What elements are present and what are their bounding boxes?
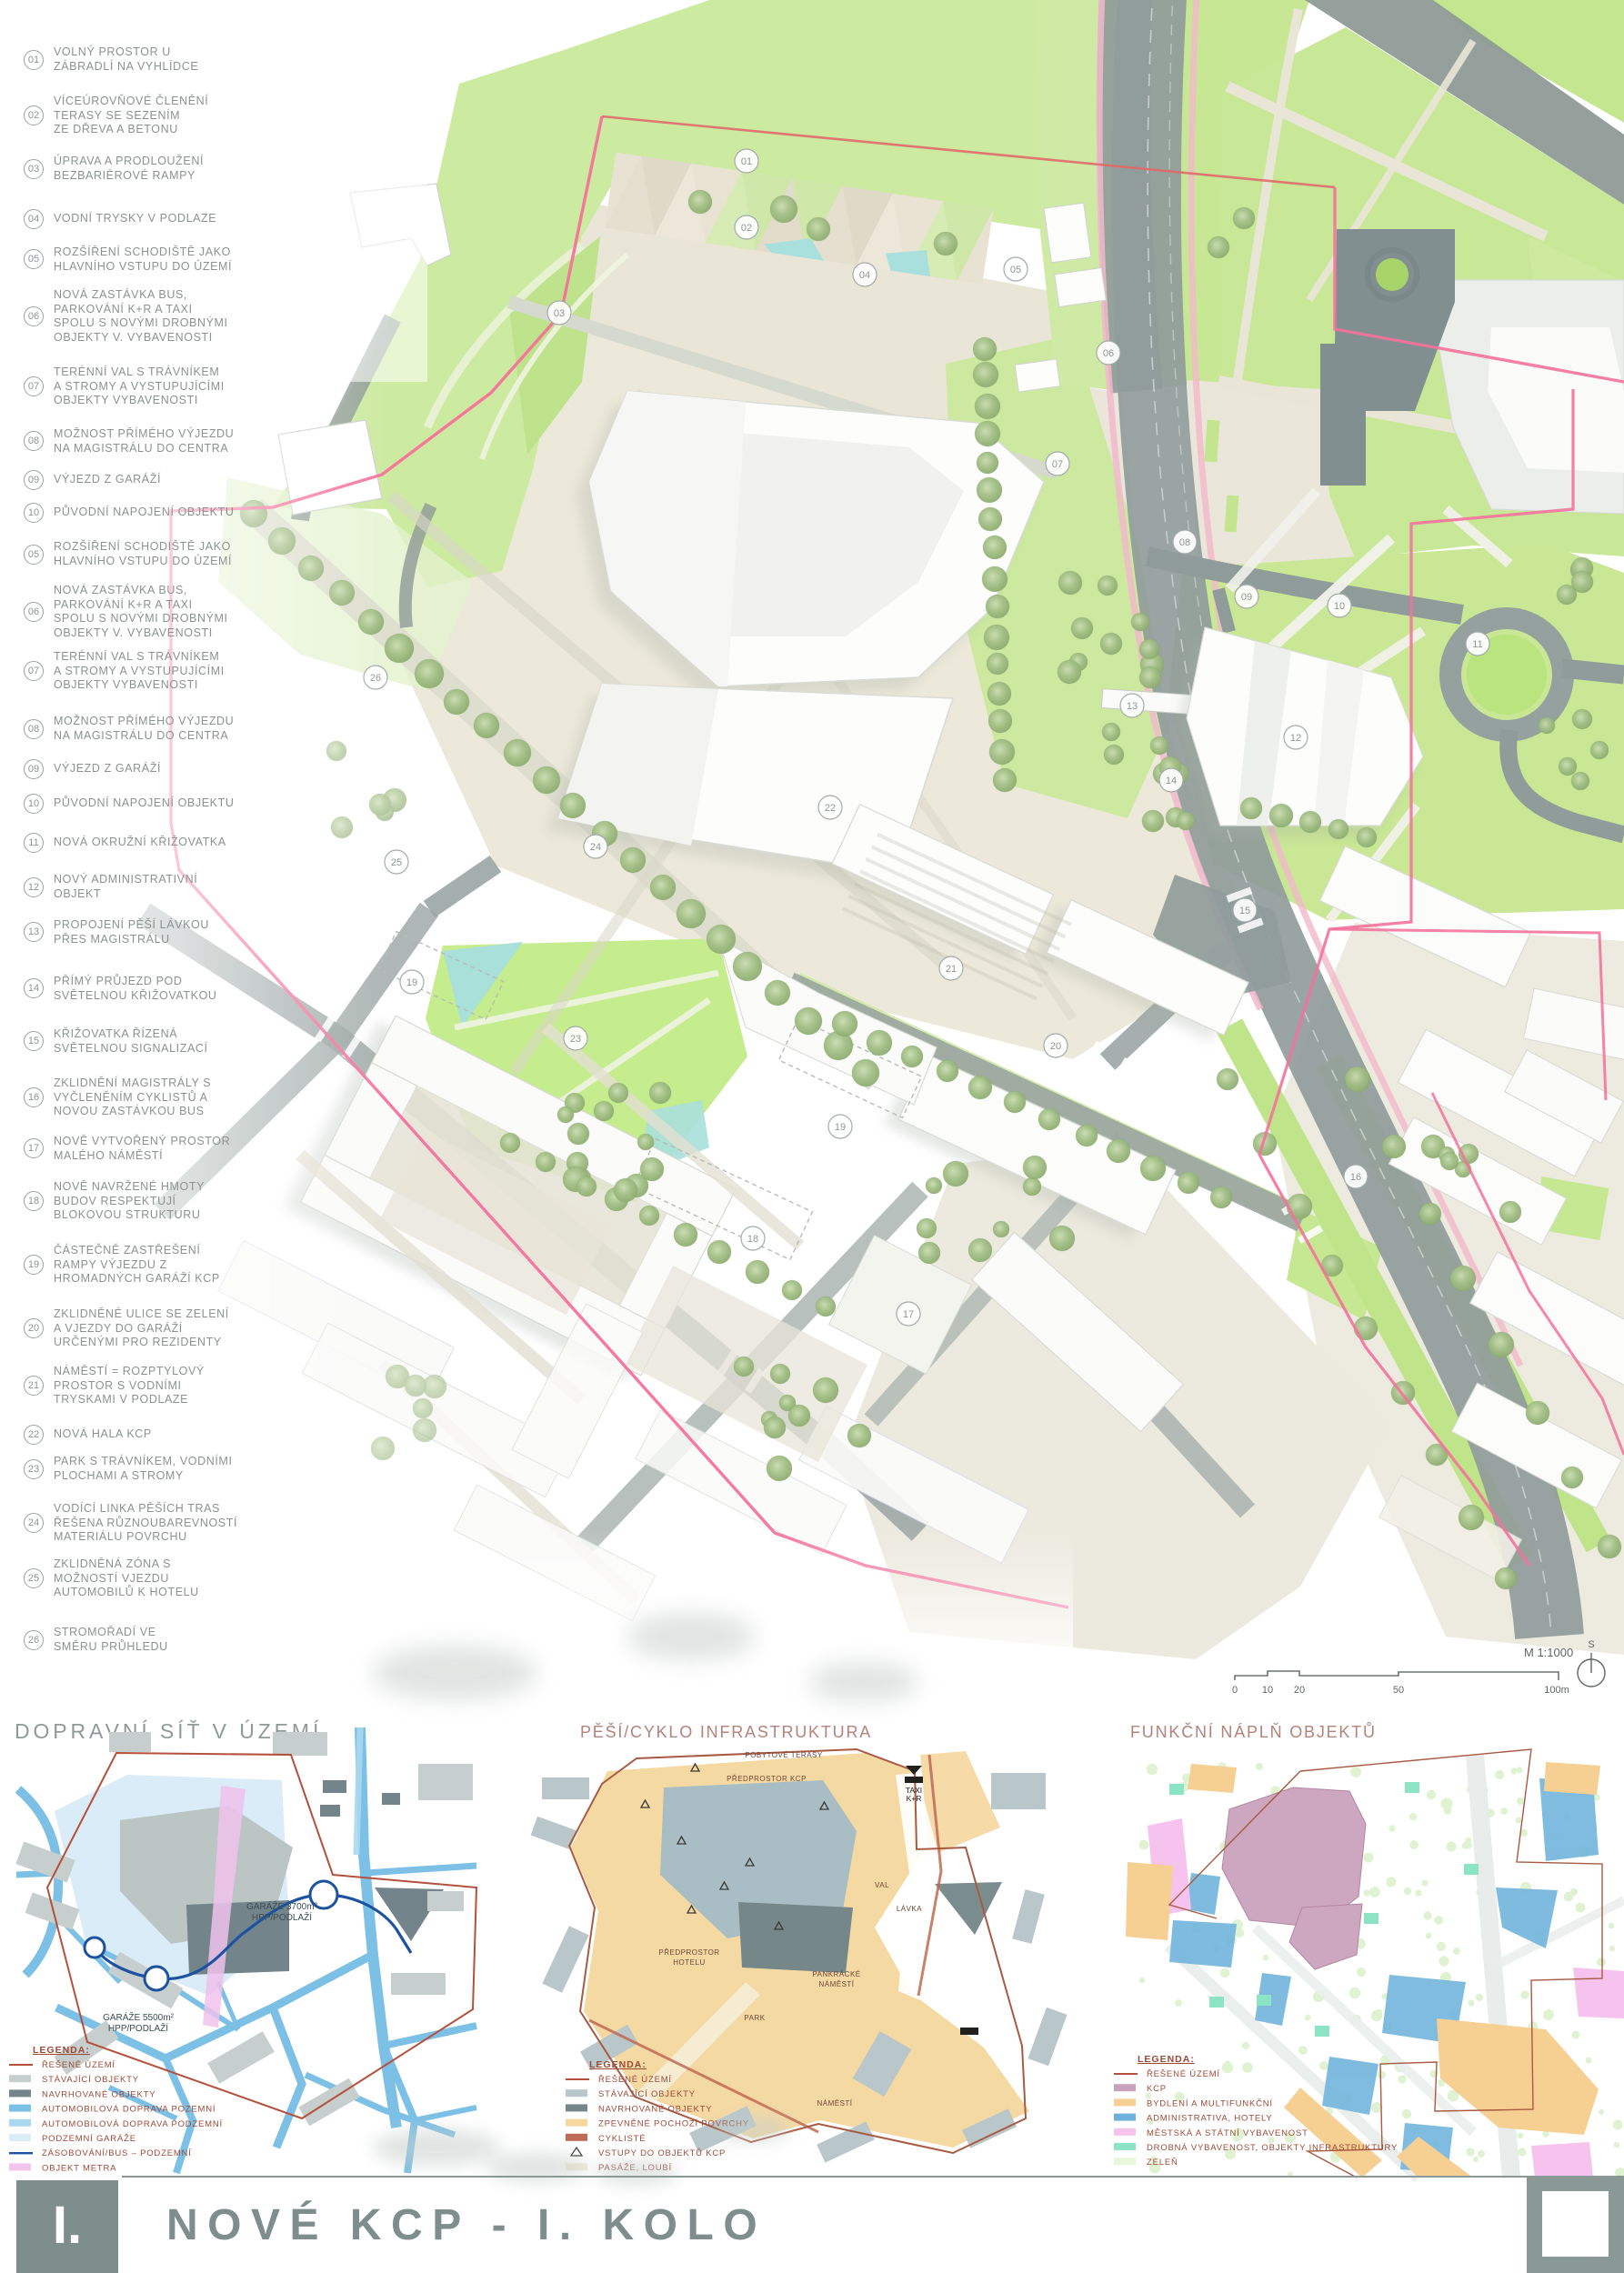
svg-text:HPP/PODLAŽÍ: HPP/PODLAŽÍ — [108, 2022, 168, 2034]
svg-text:ADMINISTRATIVA, HOTELY: ADMINISTRATIVA, HOTELY — [1147, 2114, 1272, 2124]
svg-text:PARK: PARK — [744, 2014, 765, 2022]
svg-text:HPP/PODLAŽÍ: HPP/PODLAŽÍ — [252, 1911, 312, 1923]
svg-text:AUTOMOBILOVÁ DOPRAVA PODZEMNÍ: AUTOMOBILOVÁ DOPRAVA PODZEMNÍ — [42, 2119, 223, 2129]
svg-text:S: S — [1588, 1639, 1594, 1650]
svg-text:GARÁŽE 5500m²: GARÁŽE 5500m² — [103, 2011, 174, 2023]
svg-text:M 1:1000: M 1:1000 — [1524, 1646, 1573, 1659]
svg-text:LÁVKA: LÁVKA — [897, 1905, 922, 1913]
svg-text:VAL: VAL — [875, 1881, 889, 1889]
svg-text:MĚSTSKÁ A STÁTNÍ VYBAVENOST: MĚSTSKÁ A STÁTNÍ VYBAVENOST — [1147, 2128, 1308, 2138]
svg-text:ŘEŠENÉ ÚZEMÍ: ŘEŠENÉ ÚZEMÍ — [1147, 2069, 1220, 2079]
svg-text:AUTOMOBILOVÁ DOPRAVA POZEMNÍ: AUTOMOBILOVÁ DOPRAVA POZEMNÍ — [42, 2105, 216, 2115]
svg-text:STÁVAJÍCÍ OBJEKTY: STÁVAJÍCÍ OBJEKTY — [598, 2089, 696, 2099]
svg-text:VSTUPY DO OBJEKTŮ KCP: VSTUPY DO OBJEKTŮ KCP — [598, 2148, 726, 2158]
svg-text:10: 10 — [1262, 1685, 1273, 1696]
svg-text:NÁMĚSTÍ: NÁMĚSTÍ — [817, 2099, 852, 2108]
svg-text:ŘEŠENÉ ÚZEMÍ: ŘEŠENÉ ÚZEMÍ — [598, 2075, 672, 2085]
svg-text:ŘEŠENÉ ÚZEMÍ: ŘEŠENÉ ÚZEMÍ — [42, 2060, 115, 2070]
svg-text:100m: 100m — [1544, 1685, 1569, 1696]
svg-text:KCP: KCP — [1147, 2084, 1167, 2094]
svg-text:50: 50 — [1393, 1685, 1404, 1696]
svg-text:HOTELU: HOTELU — [673, 1958, 705, 1967]
svg-text:NAVRHOVANÉ OBJEKTY: NAVRHOVANÉ OBJEKTY — [598, 2104, 712, 2114]
svg-text:K+R: K+R — [907, 1794, 922, 1803]
svg-text:ZÁSOBOVÁNÍ/BUS – PODZEMNÍ: ZÁSOBOVÁNÍ/BUS – PODZEMNÍ — [42, 2148, 192, 2158]
svg-text:PŘEDPROSTOR KCP: PŘEDPROSTOR KCP — [727, 1775, 807, 1783]
svg-text:ZELEŇ: ZELEŇ — [1147, 2158, 1178, 2168]
svg-text:CYKLISTÉ: CYKLISTÉ — [598, 2134, 646, 2144]
svg-text:BYDLENÍ A MULTIFUNKČNÍ: BYDLENÍ A MULTIFUNKČNÍ — [1147, 2098, 1273, 2108]
svg-text:PODZEMNÍ GARÁŽE: PODZEMNÍ GARÁŽE — [42, 2134, 136, 2144]
svg-text:LEGENDA:: LEGENDA: — [589, 2059, 647, 2070]
svg-text:0: 0 — [1232, 1685, 1238, 1696]
svg-text:PANKRÁCKÉ: PANKRÁCKÉ — [812, 1970, 860, 1978]
svg-text:20: 20 — [1294, 1685, 1305, 1696]
svg-text:STÁVAJÍCÍ OBJEKTY: STÁVAJÍCÍ OBJEKTY — [42, 2075, 139, 2085]
svg-text:NÁMĚSTÍ: NÁMĚSTÍ — [818, 1980, 854, 1988]
svg-text:POBYTOVÉ TERASY: POBYTOVÉ TERASY — [745, 1751, 823, 1759]
svg-text:DROBNÁ VYBAVENOST, OBJEKTY INF: DROBNÁ VYBAVENOST, OBJEKTY INFRASTRUKTUR… — [1147, 2143, 1398, 2153]
svg-text:OBJEKT METRA: OBJEKT METRA — [42, 2163, 116, 2173]
svg-text:GARÁŽE 3700m²: GARÁŽE 3700m² — [246, 1900, 317, 1912]
svg-text:LEGENDA:: LEGENDA: — [33, 2045, 90, 2056]
svg-text:PŘEDPROSTOR: PŘEDPROSTOR — [658, 1948, 719, 1957]
svg-text:LEGENDA:: LEGENDA: — [1138, 2054, 1195, 2065]
svg-text:NAVRHOVANÉ OBJEKTY: NAVRHOVANÉ OBJEKTY — [42, 2089, 155, 2099]
